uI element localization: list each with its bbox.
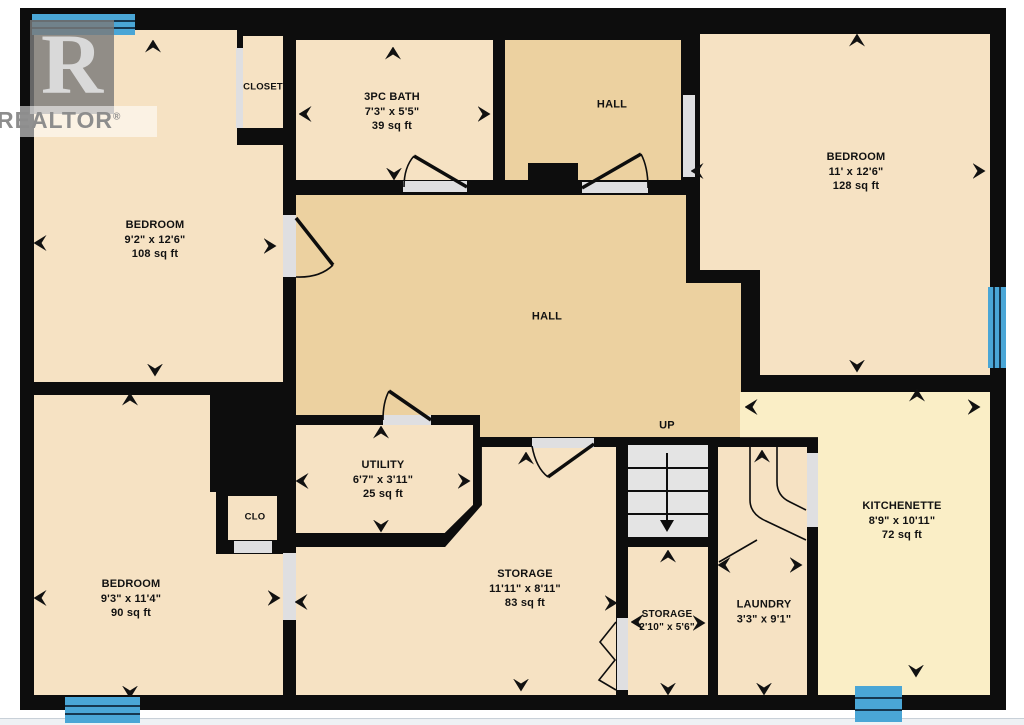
label-bedroom-top-left: BEDROOM9'2" x 12'6"108 sq ft [125, 218, 186, 262]
label-storage: STORAGE11'11" x 8'11"83 sq ft [489, 567, 561, 611]
window-bottom-right [855, 686, 902, 722]
winder-tread-1 [750, 447, 806, 540]
label-laundry-line: LAUNDRY [737, 597, 792, 612]
floor-plan: R REALTOR® CLOSET3PC BATH7'3" x 5'5"39 s… [0, 0, 1024, 725]
window-bottom-left [65, 697, 140, 723]
label-bedroom-top-right-line: 128 sq ft [827, 179, 886, 194]
door-utility-leaf [389, 391, 431, 420]
door-bedroom-top-left-arc [296, 265, 333, 277]
bifold-door [599, 622, 616, 690]
door-bedroom-top-left-leaf [296, 218, 333, 265]
label-hall-top: HALL [597, 98, 627, 113]
door-bath-leaf [414, 156, 467, 187]
label-kitchenette-line: KITCHENETTE [862, 499, 941, 514]
label-storage-small-line: 2'10" x 5'6" [639, 621, 695, 634]
door-hall-top-arc [641, 154, 648, 188]
label-storage-small-line: STORAGE [639, 608, 695, 621]
label-up-line: UP [659, 419, 675, 434]
door-bath-arc [404, 156, 414, 187]
label-bath-line: 7'3" x 5'5" [364, 105, 420, 120]
window-pane-line [65, 705, 140, 707]
label-bath-line: 3PC BATH [364, 90, 420, 105]
label-kitchenette-line: 8'9" x 10'11" [862, 514, 941, 529]
label-bedroom-bottom-left-line: 90 sq ft [101, 606, 161, 621]
window-pane-line [32, 20, 135, 22]
door-utility-arc [383, 391, 389, 420]
label-clo-line: CLO [245, 512, 266, 525]
label-closet-top: CLOSET [243, 82, 283, 95]
label-bedroom-top-left-line: BEDROOM [125, 218, 186, 233]
door-hall-top-leaf [582, 154, 641, 188]
label-bedroom-top-left-line: 108 sq ft [125, 247, 186, 262]
label-utility-line: UTILITY [353, 458, 413, 473]
label-closet-top-line: CLOSET [243, 82, 283, 95]
label-storage-small: STORAGE2'10" x 5'6" [639, 608, 695, 634]
label-bedroom-top-left-line: 9'2" x 12'6" [125, 233, 186, 248]
label-utility-line: 25 sq ft [353, 487, 413, 502]
label-laundry: LAUNDRY3'3" x 9'1" [737, 597, 792, 626]
label-kitchenette-line: 72 sq ft [862, 528, 941, 543]
label-laundry-line: 3'3" x 9'1" [737, 612, 792, 627]
stair-direction-arrowhead [660, 520, 674, 532]
label-bedroom-bottom-left-line: BEDROOM [101, 577, 161, 592]
label-kitchenette: KITCHENETTE8'9" x 10'11"72 sq ft [862, 499, 941, 543]
label-bedroom-bottom-left-line: 9'3" x 11'4" [101, 592, 161, 607]
label-bedroom-bottom-left: BEDROOM9'3" x 11'4"90 sq ft [101, 577, 161, 621]
window-pane-line [993, 287, 995, 368]
label-storage-line: 11'11" x 8'11" [489, 582, 561, 597]
label-utility: UTILITY6'7" x 3'11"25 sq ft [353, 458, 413, 502]
label-bath-line: 39 sq ft [364, 119, 420, 134]
window-right [988, 287, 1006, 368]
label-clo: CLO [245, 512, 266, 525]
window-pane-line [855, 697, 902, 699]
window-pane-line [65, 713, 140, 715]
window-pane-line [999, 287, 1001, 368]
label-bedroom-top-right-line: BEDROOM [827, 150, 886, 165]
label-up: UP [659, 419, 675, 434]
window-top-left [32, 14, 135, 35]
label-bedroom-top-right: BEDROOM11' x 12'6"128 sq ft [827, 150, 886, 194]
label-storage-line: 83 sq ft [489, 596, 561, 611]
label-hall-main-line: HALL [532, 310, 562, 325]
label-utility-line: 6'7" x 3'11" [353, 473, 413, 488]
winder-tread-2 [777, 447, 806, 510]
label-bath: 3PC BATH7'3" x 5'5"39 sq ft [364, 90, 420, 134]
label-storage-line: STORAGE [489, 567, 561, 582]
winder-tread-3 [719, 540, 757, 562]
window-pane-line [32, 27, 135, 29]
door-storage-leaf [548, 444, 594, 477]
label-bedroom-top-right-line: 11' x 12'6" [827, 165, 886, 180]
window-pane-line [855, 709, 902, 711]
door-storage-arc [532, 446, 548, 477]
label-hall-top-line: HALL [597, 98, 627, 113]
label-hall-main: HALL [532, 310, 562, 325]
